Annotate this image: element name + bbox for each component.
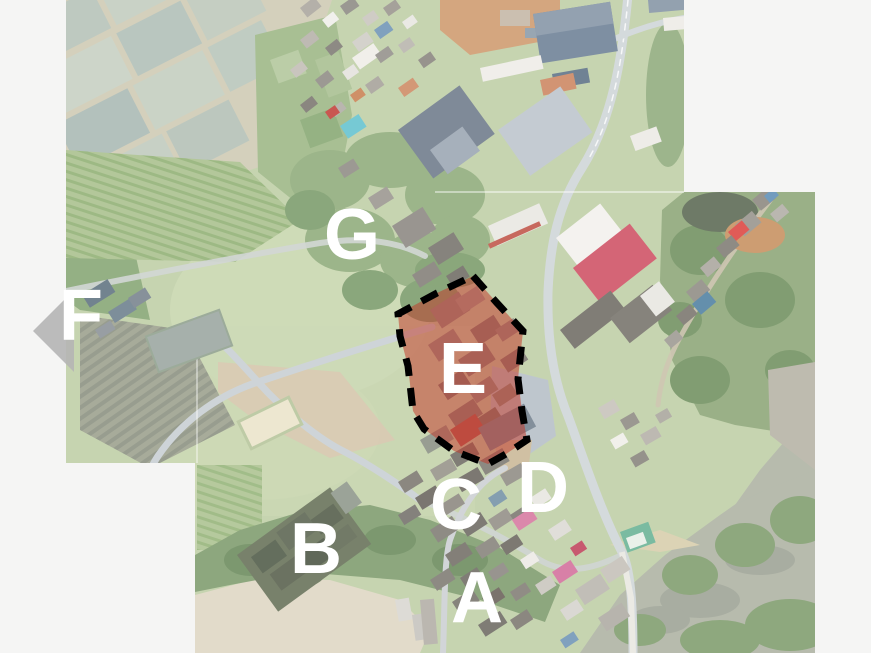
orthophoto-layer	[0, 0, 871, 653]
aerial-map-figure[interactable]: A B C D E F G	[0, 0, 871, 653]
region-f-arrow-icon	[33, 290, 74, 372]
